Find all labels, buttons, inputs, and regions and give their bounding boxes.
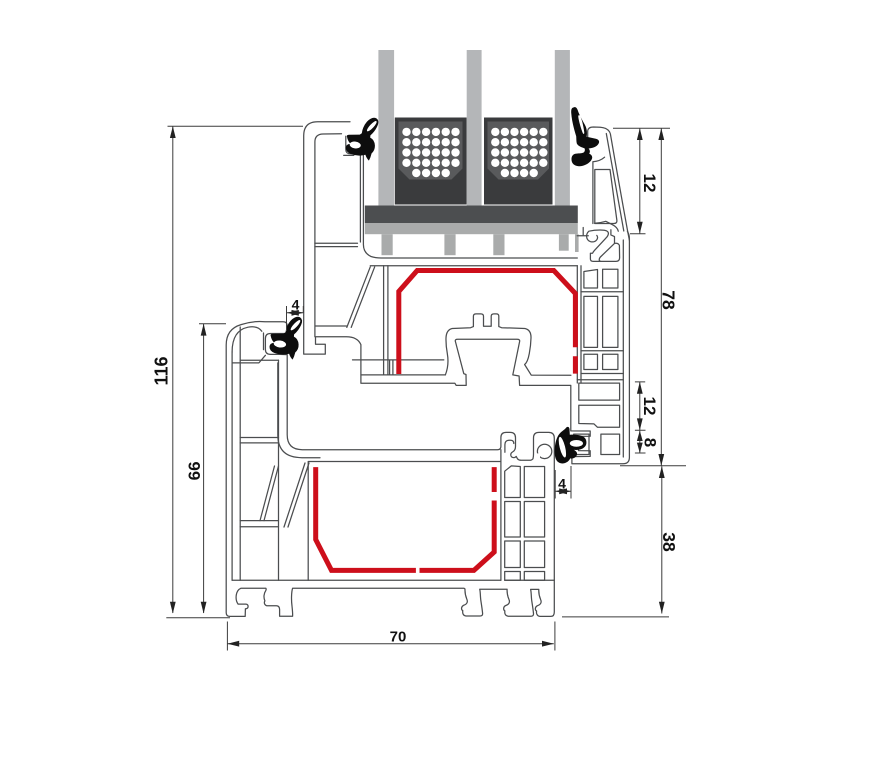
svg-text:116: 116 (152, 356, 172, 385)
svg-text:70: 70 (390, 629, 407, 646)
svg-text:78: 78 (659, 290, 679, 310)
svg-text:4: 4 (558, 476, 566, 492)
svg-text:4: 4 (292, 297, 300, 313)
svg-text:12: 12 (640, 397, 659, 416)
svg-text:66: 66 (185, 461, 204, 480)
svg-text:38: 38 (659, 532, 679, 552)
svg-text:8: 8 (641, 438, 660, 447)
svg-text:12: 12 (640, 174, 659, 193)
